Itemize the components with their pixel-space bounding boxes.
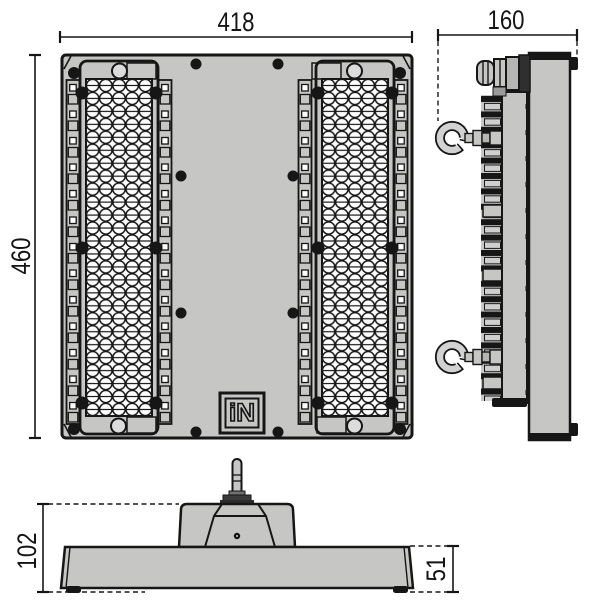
dimension-label-width: 418 (218, 7, 255, 37)
dimension-label-height: 460 (6, 238, 36, 275)
mounting-bracket (179, 504, 295, 547)
foot-top (569, 57, 578, 70)
lens-array (322, 79, 388, 416)
led-panel-left (80, 61, 158, 434)
foot-bottom (569, 423, 578, 436)
column-bottom-cap (492, 398, 527, 407)
dimension-label-base-height: 51 (421, 557, 451, 582)
lens-array (86, 79, 152, 416)
technical-drawing: iN (0, 0, 600, 600)
foot-right (393, 586, 408, 593)
side-plate (529, 53, 570, 440)
heatsink-column (502, 92, 527, 403)
brand-logo: iN (220, 393, 264, 433)
base-body (61, 547, 413, 588)
dimension-label-depth: 160 (488, 5, 525, 35)
front-view: iN (62, 55, 412, 438)
logo-text: iN (229, 399, 255, 427)
latch-circle (347, 64, 362, 79)
latch-circle (347, 419, 362, 434)
latch-circle (112, 64, 127, 79)
dimension-label-profile-height: 102 (12, 533, 42, 570)
dimension-drawing-svg: iN (0, 0, 600, 600)
latch-circle (111, 419, 126, 434)
